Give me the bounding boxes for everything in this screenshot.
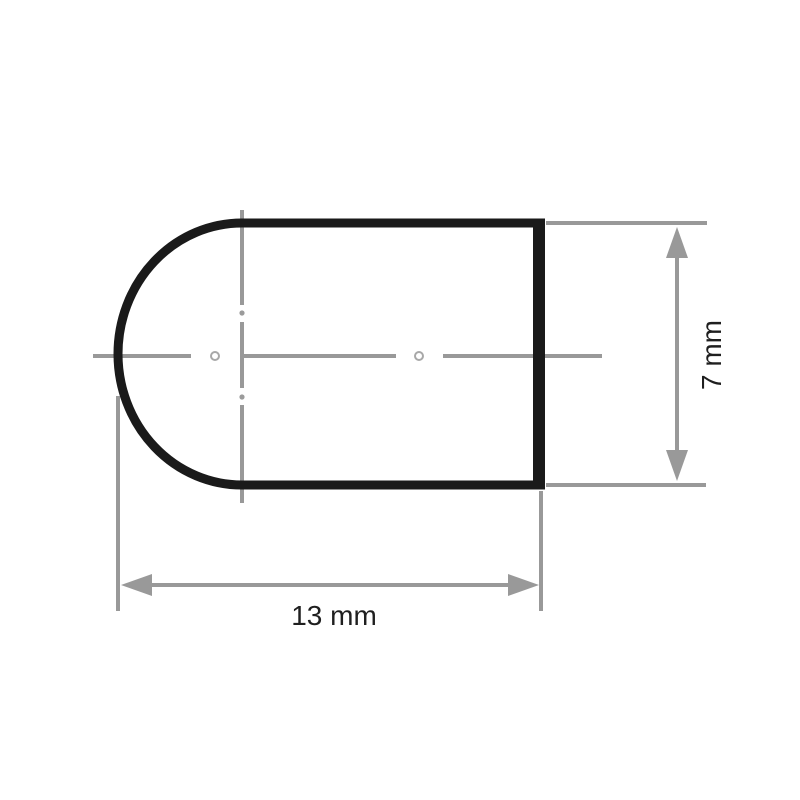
technical-drawing: 7 mm 13 mm [0, 0, 800, 800]
width-dimension: 13 mm [121, 574, 539, 631]
arrowhead-right-icon [508, 574, 539, 596]
arc-center-mark [211, 352, 219, 360]
centerline-dot [239, 310, 244, 315]
height-dimension: 7 mm [666, 227, 727, 481]
width-dimension-label: 13 mm [291, 600, 377, 631]
arrowhead-down-icon [666, 450, 688, 481]
arrowhead-up-icon [666, 227, 688, 258]
centerline-dot [239, 394, 244, 399]
vertical-centerline [239, 210, 244, 503]
arc-center-mark [415, 352, 423, 360]
height-dimension-label: 7 mm [696, 320, 727, 390]
drawing-canvas: 7 mm 13 mm [0, 0, 800, 800]
extension-lines [118, 223, 707, 611]
arrowhead-left-icon [121, 574, 152, 596]
horizontal-centerline [93, 352, 602, 360]
